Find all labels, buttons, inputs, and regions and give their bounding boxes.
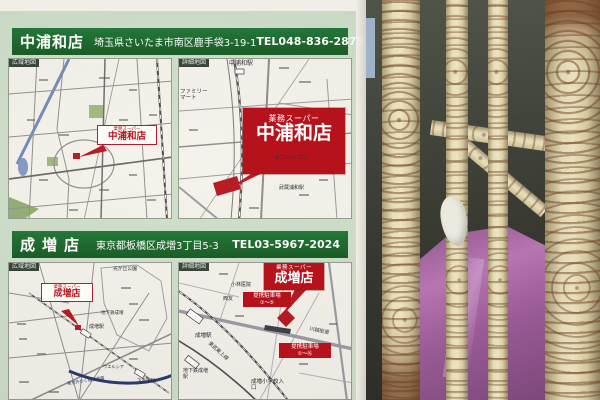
map-place-label: 地下鉄成増 (101, 311, 124, 316)
map-place-label: 成増駅 (89, 325, 104, 331)
store-label: 成増店 (264, 272, 324, 286)
map-corner-tag: 詳細地図 (179, 263, 209, 271)
banner-narimasu: 成増店 東京都板橋区成増3丁目5-3 TEL03-5967-2024 (12, 231, 348, 258)
park-patch (47, 157, 58, 166)
store-name-nakaurawa: 中浦和店 (20, 31, 84, 52)
pond-shape (18, 158, 28, 176)
store-location-label: 業務スーパー 中浦和店 (243, 108, 345, 174)
store-address-nakaurawa: 埼玉県さいたま市南区鹿手袋3-19-1 (94, 34, 256, 49)
map-place-label: ファミリーマート (180, 89, 210, 102)
parking-title: 提携駐車場 (279, 344, 331, 351)
store-marker (73, 153, 80, 159)
railway-sub (227, 59, 234, 219)
metal-fence (366, 0, 600, 400)
map-place-label: 武蔵浦和駅 (279, 186, 304, 192)
parking-label-1: 提携駐車場 ①〜⑤ (243, 292, 291, 307)
fence-bar (488, 0, 508, 400)
parking-range: ①〜⑤ (243, 300, 291, 306)
store-tel-nakaurawa: TEL048-836-2875 (256, 35, 364, 48)
main-road (9, 157, 172, 179)
sky-patch (366, 18, 375, 78)
map-place-label: 地下鉄成増駅 (183, 369, 209, 381)
photo-scene: 中浦和店 埼玉県さいたま市南区鹿手袋3-19-1 TEL048-836-2875… (0, 0, 600, 400)
map-place-label: 西友 (223, 297, 233, 303)
fence-bar (382, 0, 420, 400)
purple-tarp (410, 226, 548, 400)
station-marker (134, 369, 145, 379)
banner-nakaurawa: 中浦和店 埼玉県さいたま市南区鹿手袋3-19-1 TEL048-836-2875 (12, 28, 348, 55)
station-marker (186, 309, 203, 324)
wide-area-map-narimasu: 広域地図 (8, 262, 172, 400)
store-address-narimasu: 東京都板橋区成増3丁目5-3 (96, 237, 219, 252)
map-corner-tag: 広域地図 (9, 59, 39, 67)
parking-range: ①〜⑯ (279, 351, 331, 357)
district-boundary (101, 265, 167, 351)
store-label: 中浦和店 (100, 132, 154, 142)
parking-label-2: 提携駐車場 ①〜⑯ (279, 343, 331, 358)
map-place-label: 小林医院 (231, 283, 251, 289)
store-tel-narimasu: TEL03-5967-2024 (232, 238, 340, 251)
map-place-label: セブンイレブン (275, 156, 307, 161)
fence-bar (545, 0, 600, 400)
store-marker (213, 176, 241, 196)
poster-green-panel: 中浦和店 埼玉県さいたま市南区鹿手袋3-19-1 TEL048-836-2875… (0, 11, 356, 400)
map-place-label: 成増小学校入口 (251, 379, 287, 392)
store-info-poster: 中浦和店 埼玉県さいたま市南区鹿手袋3-19-1 TEL048-836-2875… (0, 0, 366, 400)
park-patch (89, 105, 104, 118)
map-place-label: 中浦和駅 (229, 61, 253, 68)
map-place-label: 光が丘公園 (113, 267, 137, 273)
map-corner-tag: 詳細地図 (179, 59, 209, 67)
map-place-label: 成増駅 (195, 333, 212, 339)
detail-map-narimasu: 詳細地図 (178, 262, 352, 400)
map-corner-tag: 広域地図 (9, 263, 39, 271)
parking-title: 提携駐車場 (243, 293, 291, 300)
store-location-label: 業務スーパー 中浦和店 (97, 125, 157, 145)
store-marker (75, 325, 81, 330)
store-location-label: 業務スーパー 成増店 (264, 263, 324, 290)
store-location-label: 業務スーパー 成増店 (41, 283, 93, 302)
station-marker (185, 355, 200, 368)
map-place-label: ウエルシア (103, 365, 124, 370)
detail-map-nakaurawa: 詳細地図 (178, 58, 352, 219)
store-name-narimasu: 成増店 (20, 234, 86, 255)
station-marker (235, 69, 244, 74)
map-place-label: 下赤塚駅 (137, 379, 155, 384)
wide-area-map-nakaurawa: 広域地図 (8, 58, 172, 219)
store-label: 中浦和店 (243, 124, 345, 144)
store-label: 成増店 (44, 290, 90, 300)
